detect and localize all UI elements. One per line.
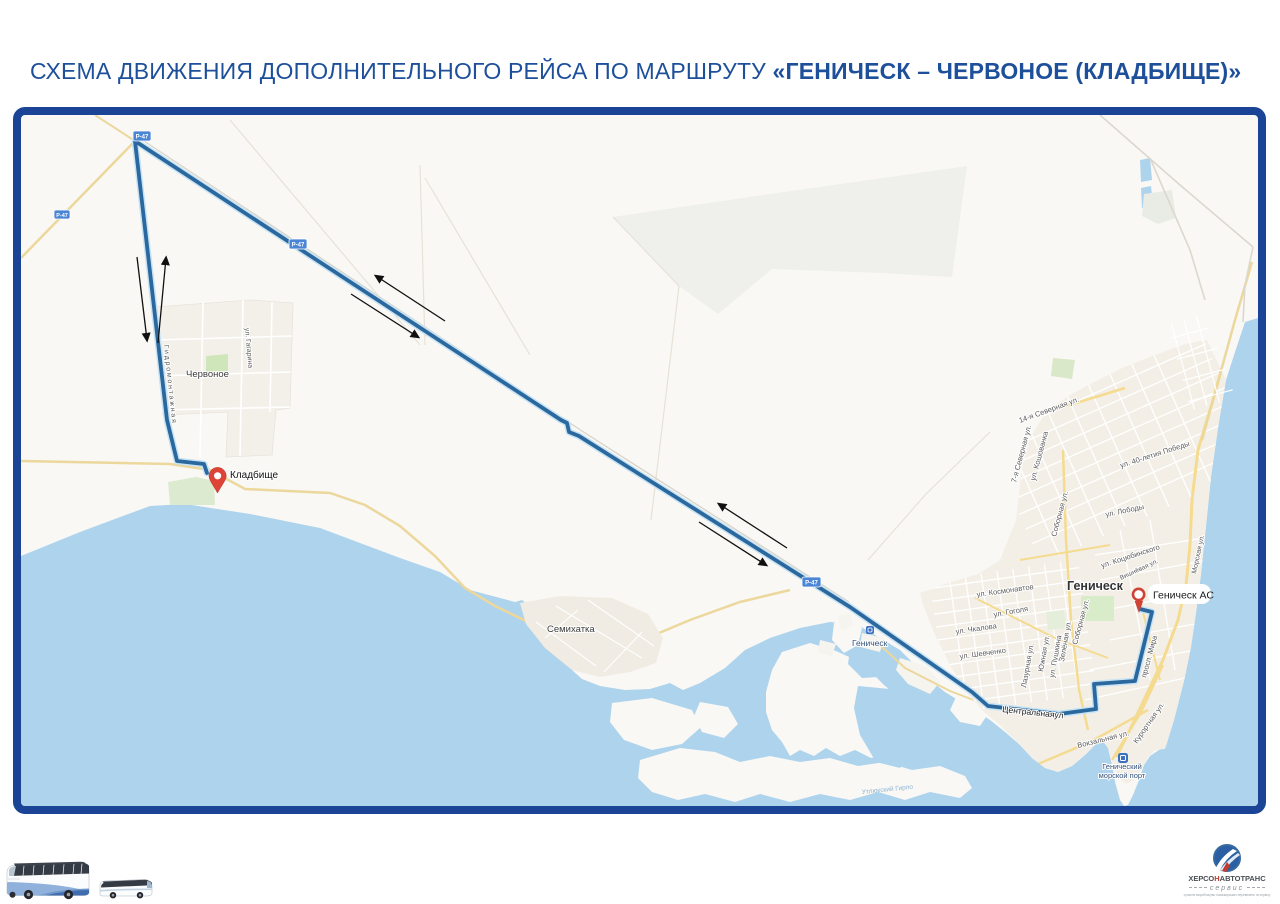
svg-text:Р-47: Р-47 (56, 213, 68, 219)
svg-text:Р-47: Р-47 (292, 243, 305, 249)
svg-text:Кладбище: Кладбище (230, 469, 278, 481)
svg-text:сучасне виробництво пасажирськ: сучасне виробництво пасажирських перевез… (1184, 893, 1271, 897)
svg-text:Геническ АС: Геническ АС (1153, 590, 1214, 602)
svg-text:Семихатка: Семихатка (547, 624, 595, 635)
svg-text:ХЕРСОНАВТОТРАНС: ХЕРСОНАВТОТРАНС (1188, 874, 1266, 883)
svg-text:Р-47: Р-47 (136, 135, 149, 141)
svg-text:сервис: сервис (1210, 885, 1244, 892)
svg-text:Генический: Генический (1102, 762, 1142, 771)
svg-text:Геническ: Геническ (1067, 579, 1124, 593)
svg-text:Геническ: Геническ (852, 638, 888, 648)
svg-text:Червоное: Червоное (186, 369, 229, 380)
svg-text:Р-47: Р-47 (805, 581, 818, 587)
svg-text:морской порт: морской порт (1099, 771, 1146, 780)
